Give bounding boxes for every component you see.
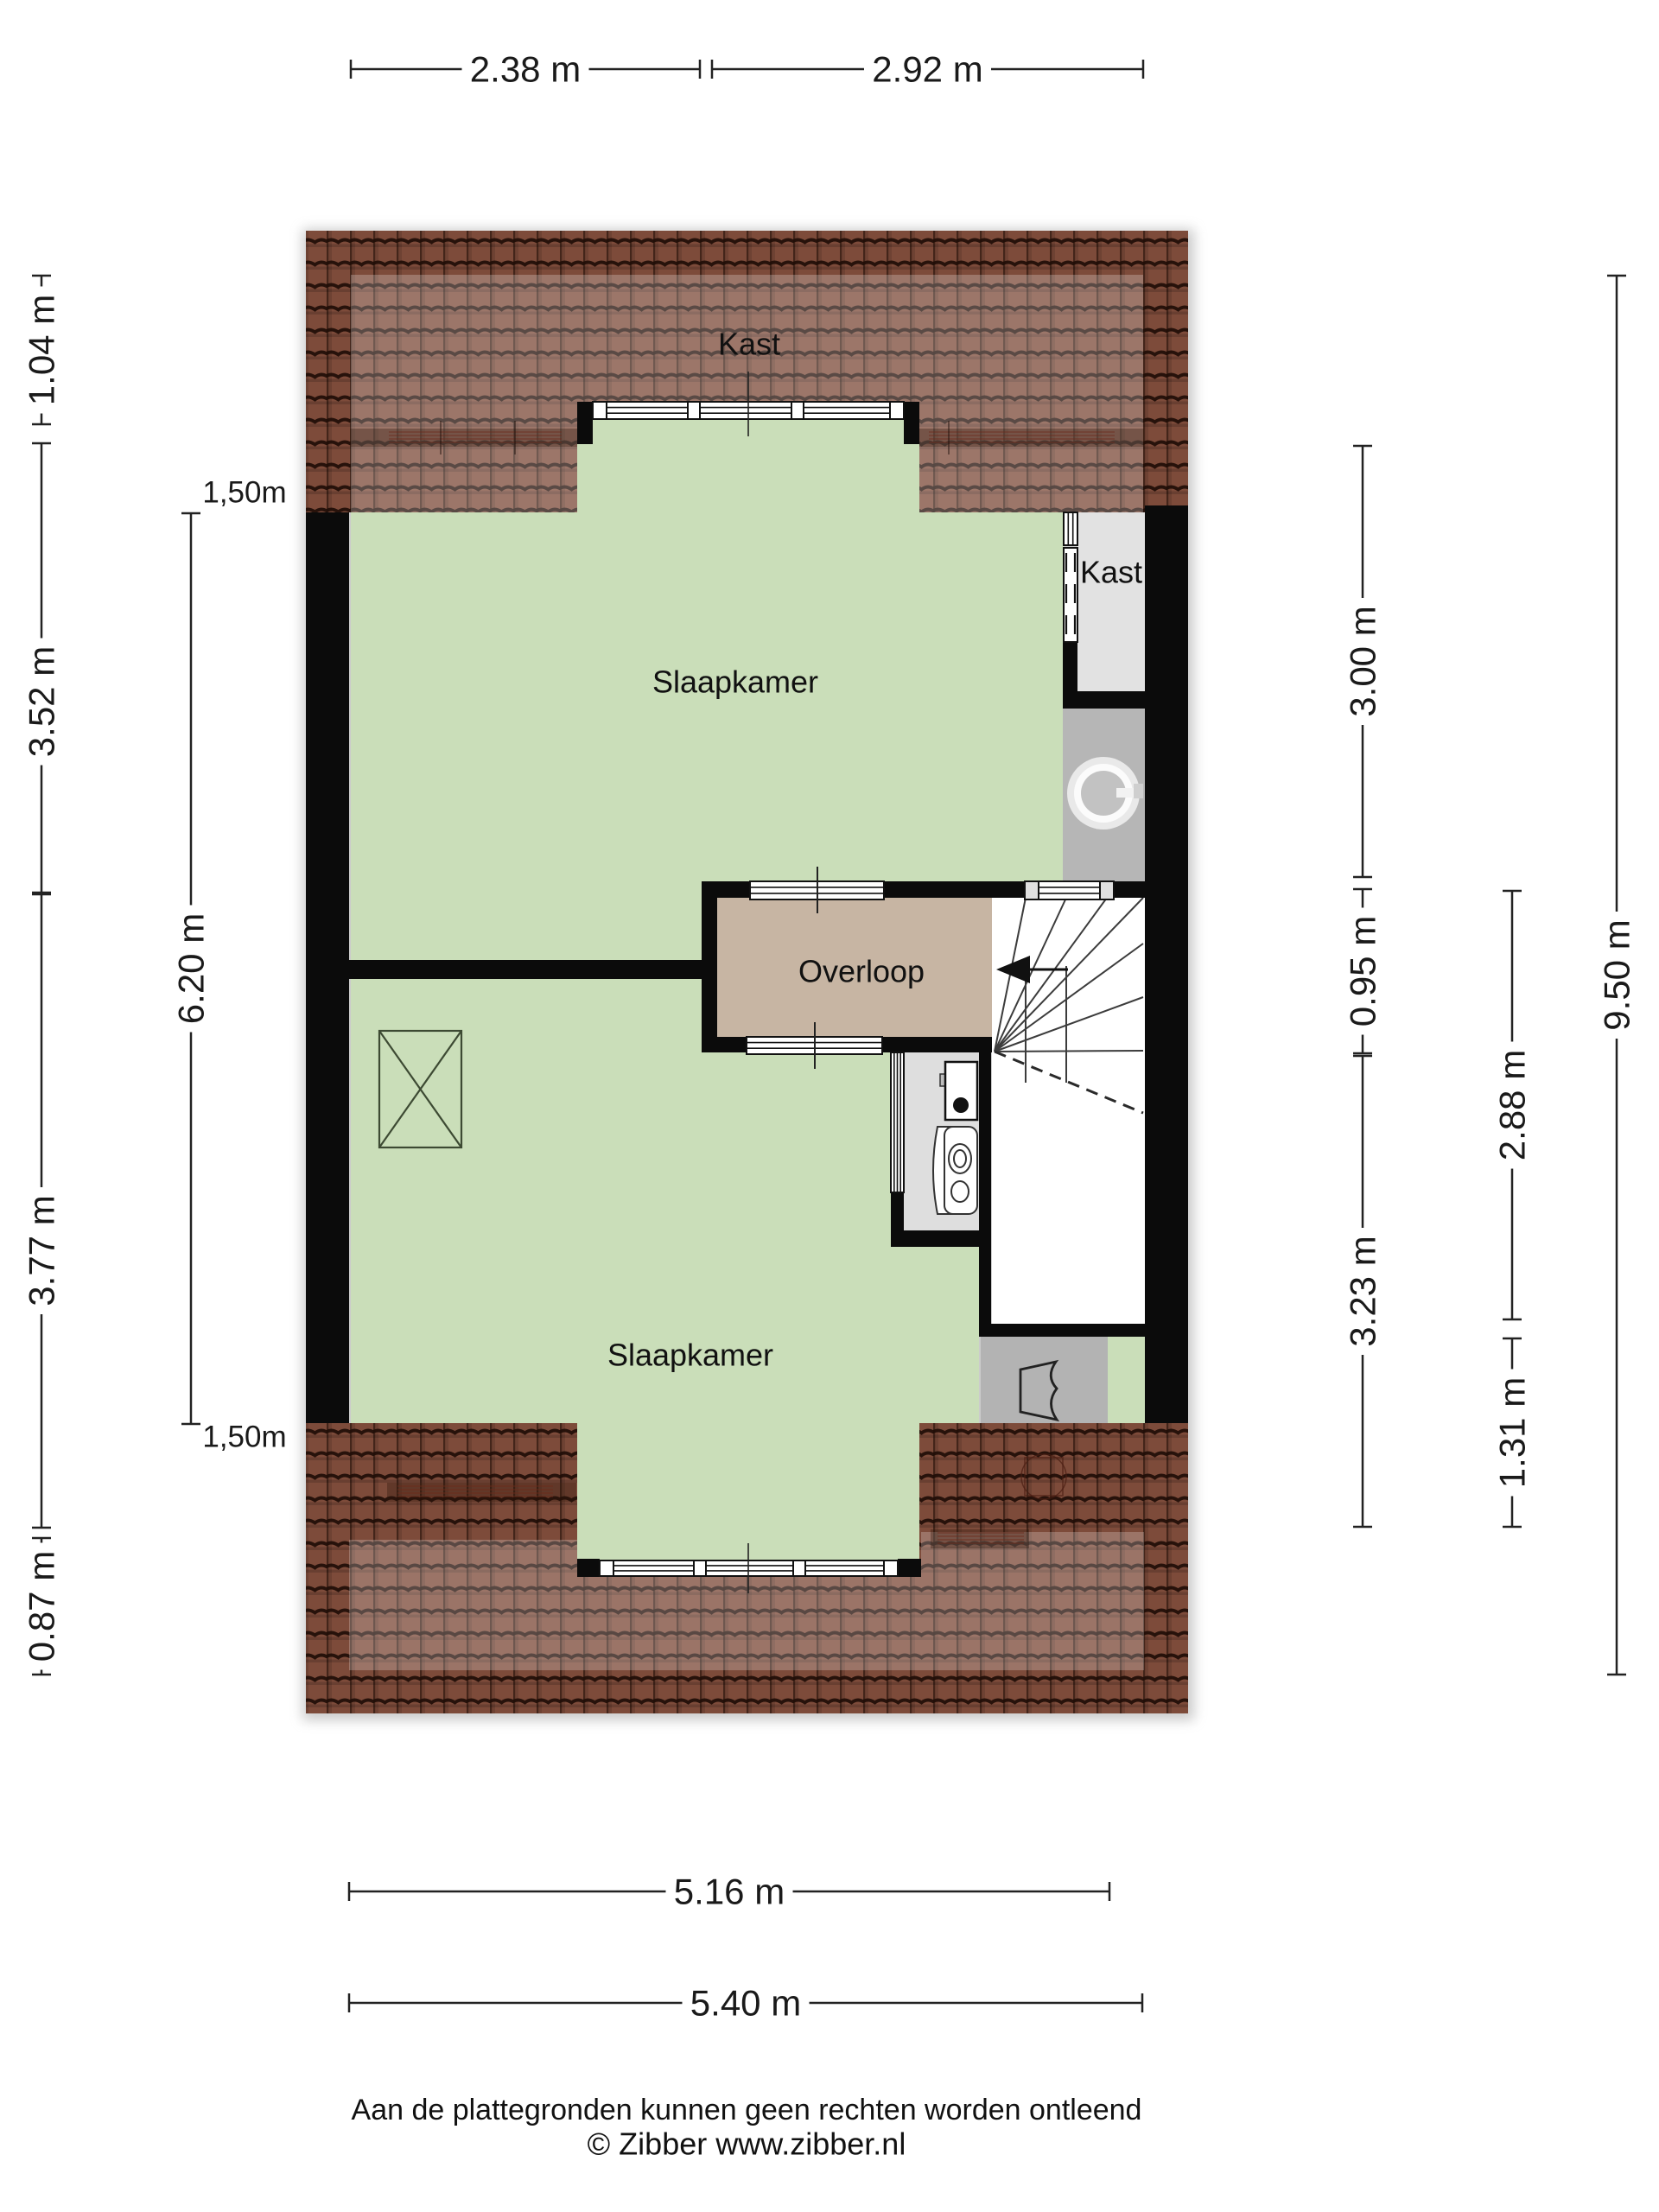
svg-text:Slaapkamer: Slaapkamer bbox=[652, 664, 818, 700]
svg-text:1.31 m: 1.31 m bbox=[1492, 1377, 1533, 1488]
svg-text:6.20 m: 6.20 m bbox=[171, 913, 212, 1024]
svg-text:3.23 m: 3.23 m bbox=[1343, 1236, 1383, 1346]
svg-text:© Zibber www.zibber.nl: © Zibber www.zibber.nl bbox=[588, 2126, 906, 2162]
svg-text:3.00 m: 3.00 m bbox=[1343, 606, 1383, 716]
svg-text:9.50 m: 9.50 m bbox=[1597, 919, 1637, 1030]
svg-text:Overloop: Overloop bbox=[798, 954, 925, 989]
svg-text:1,50m: 1,50m bbox=[202, 1421, 286, 1454]
svg-text:5.40 m: 5.40 m bbox=[690, 1983, 801, 2024]
svg-text:Kast: Kast bbox=[718, 327, 780, 362]
svg-text:3.77 m: 3.77 m bbox=[22, 1195, 62, 1306]
svg-text:Aan de plattegronden kunnen ge: Aan de plattegronden kunnen geen rechten… bbox=[352, 2094, 1142, 2126]
svg-text:1,50m: 1,50m bbox=[202, 476, 286, 510]
svg-text:0.87 m: 0.87 m bbox=[22, 1551, 62, 1662]
svg-text:Slaapkamer: Slaapkamer bbox=[607, 1338, 773, 1373]
svg-text:5.16 m: 5.16 m bbox=[674, 1872, 785, 1912]
svg-text:0.95 m: 0.95 m bbox=[1343, 916, 1383, 1027]
svg-text:1.04 m: 1.04 m bbox=[22, 295, 62, 405]
svg-text:3.52 m: 3.52 m bbox=[22, 646, 62, 757]
svg-text:2.38 m: 2.38 m bbox=[470, 49, 581, 90]
svg-text:2.88 m: 2.88 m bbox=[1492, 1050, 1533, 1160]
svg-text:2.92 m: 2.92 m bbox=[872, 49, 982, 90]
svg-text:Kast: Kast bbox=[1080, 555, 1142, 590]
